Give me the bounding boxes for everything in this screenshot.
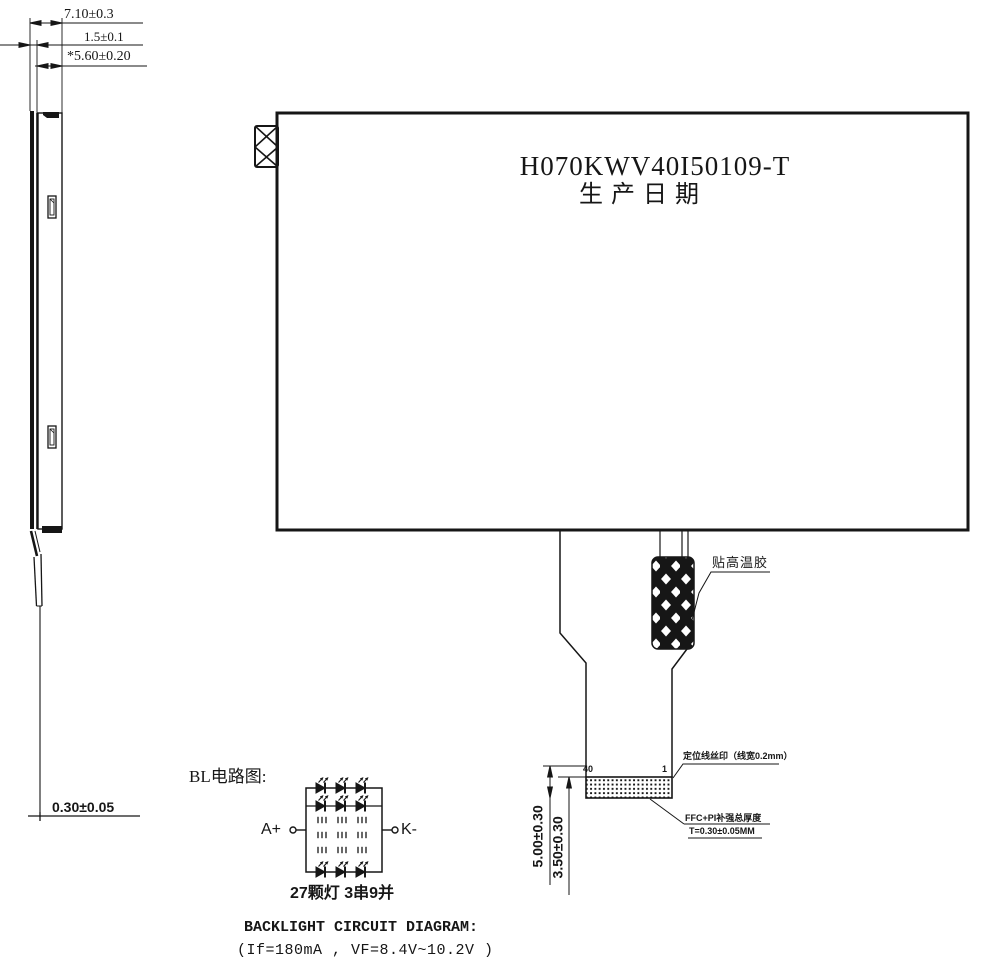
drawing-linework [0,0,990,970]
stiffener-note-line2: T=0.30±0.05MM [689,827,755,836]
dim-contact-length: 3.50±0.30 [551,787,566,907]
led-circuit [290,777,398,877]
dim-front-lip: 1.5±0.1 [84,30,124,44]
silkscreen-note: 定位线丝印（线宽0.2mm） [683,752,793,761]
dim-tail-length: 5.00±0.30 [531,776,546,896]
cathode-terminal [392,827,398,833]
production-date-label: 生产日期 [443,183,843,208]
dim-body-thickness: *5.60±0.20 [67,50,131,65]
model-number: H070KWV40I50109-T [455,152,855,180]
stiffener-note-line1: FFC+PI补强总厚度 [685,814,761,823]
ffc-contact-end [586,777,672,798]
thickness-dimensions [0,18,147,113]
electrical-spec: (If=180mA , VF=8.4V~10.2V ) [237,943,494,959]
side-view [28,111,140,821]
dim-ffc-thickness: 0.30±0.05 [52,800,114,815]
backlight-caption: BACKLIGHT CIRCUIT DIAGRAM: [244,920,478,936]
tape-label: 贴高温胶 [712,556,768,570]
anode-terminal [290,827,296,833]
pin-1-label: 1 [662,765,667,774]
bl-section-title: BL电路图: [189,768,266,786]
led-configuration: 27颗灯 3串9并 [290,886,394,903]
dim-total-thickness: 7.10±0.3 [64,8,114,23]
drawing-sheet: 7.10±0.3 1.5±0.1 *5.60±0.20 0.30±0.05 H0… [0,0,990,970]
cathode-label: K- [401,822,417,839]
pin-40-label: 40 [583,765,593,774]
anode-label: A+ [261,822,281,839]
alignment-hatch-mark [255,126,278,167]
ffc-cable [560,531,779,838]
high-temp-tape [652,557,694,649]
